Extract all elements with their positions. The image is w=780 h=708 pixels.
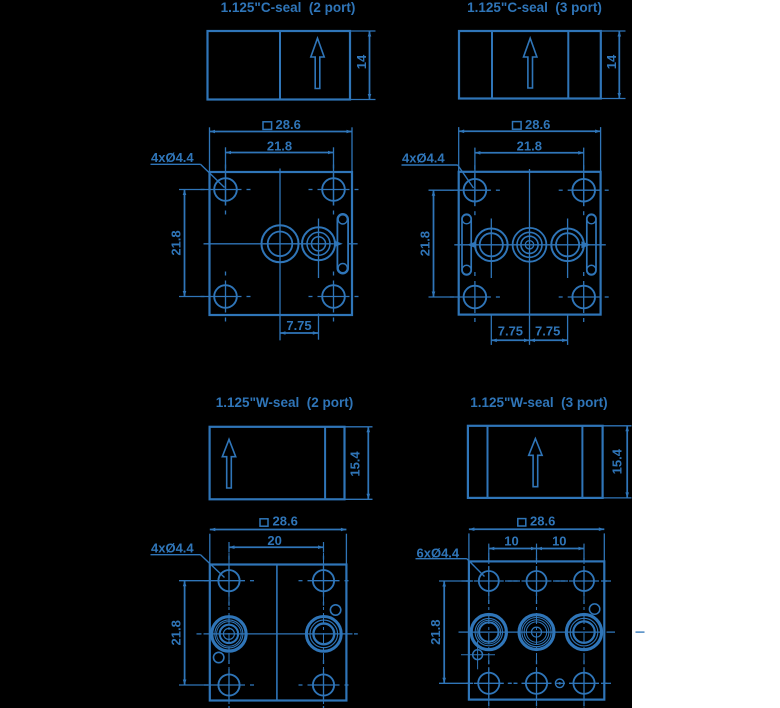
svg-text:21.8: 21.8: [418, 231, 433, 256]
svg-text:7.75: 7.75: [286, 318, 311, 333]
svg-text:10: 10: [552, 534, 566, 549]
svg-text:10: 10: [504, 534, 518, 549]
svg-text:1.125"W-seal (2 port): 1.125"W-seal (2 port): [216, 395, 353, 410]
svg-text:28.6: 28.6: [276, 117, 301, 132]
svg-text:4xØ4.4: 4xØ4.4: [402, 151, 445, 166]
svg-text:28.6: 28.6: [530, 513, 555, 528]
svg-text:1.125"W-seal (3 port): 1.125"W-seal (3 port): [470, 395, 607, 410]
svg-text:28.6: 28.6: [525, 117, 550, 132]
svg-text:7.75: 7.75: [498, 323, 523, 338]
svg-text:1.125"C-seal (2 port): 1.125"C-seal (2 port): [221, 0, 356, 15]
svg-text:7.75: 7.75: [535, 323, 560, 338]
svg-text:21.8: 21.8: [428, 620, 443, 645]
svg-text:15.4: 15.4: [347, 451, 362, 477]
svg-text:28.6: 28.6: [273, 513, 298, 528]
svg-text:21.8: 21.8: [517, 138, 542, 153]
svg-text:21.8: 21.8: [169, 620, 184, 645]
svg-text:21.8: 21.8: [267, 138, 292, 153]
svg-text:14: 14: [354, 54, 369, 69]
svg-text:4xØ4.4: 4xØ4.4: [151, 150, 194, 165]
svg-text:4xØ4.4: 4xØ4.4: [151, 541, 194, 556]
svg-text:15.4: 15.4: [609, 448, 624, 474]
svg-text:21.8: 21.8: [169, 230, 184, 255]
svg-text:1.125"C-seal (3 port): 1.125"C-seal (3 port): [467, 0, 602, 15]
svg-text:14: 14: [604, 54, 619, 69]
svg-text:20: 20: [267, 533, 281, 548]
